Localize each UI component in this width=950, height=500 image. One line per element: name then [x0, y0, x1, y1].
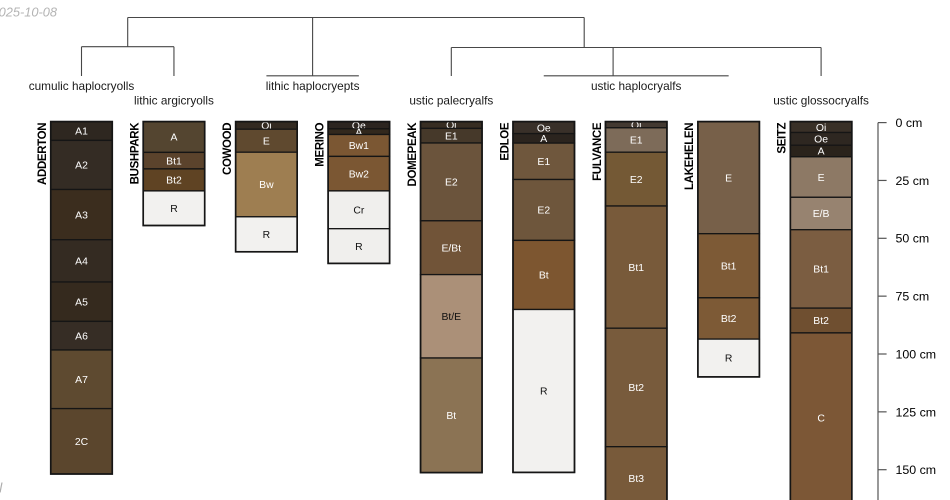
svg-text:Bt/E: Bt/E — [441, 312, 461, 323]
svg-text:A2: A2 — [75, 161, 88, 172]
svg-text:0 cm: 0 cm — [896, 116, 923, 130]
svg-text:LAKEHELEN: LAKEHELEN — [684, 123, 696, 190]
svg-text:R: R — [355, 242, 363, 253]
svg-text:E2: E2 — [537, 206, 550, 217]
svg-text:A3: A3 — [75, 210, 88, 221]
svg-text:cumulic haplocryolls: cumulic haplocryolls — [29, 79, 135, 93]
svg-text:E: E — [818, 173, 825, 184]
svg-text:Bt1: Bt1 — [813, 265, 829, 276]
svg-text:COWOOD: COWOOD — [222, 123, 234, 175]
svg-text:A: A — [170, 133, 177, 144]
svg-text:Bt3: Bt3 — [628, 474, 644, 485]
svg-text:Bt2: Bt2 — [721, 314, 737, 325]
svg-text:Oe: Oe — [537, 123, 551, 134]
svg-text:E2: E2 — [445, 178, 458, 189]
svg-text:Bt1: Bt1 — [628, 263, 644, 274]
svg-text:2025-10-08: 2025-10-08 — [0, 5, 58, 20]
svg-text:R: R — [170, 204, 178, 215]
svg-text:A7: A7 — [75, 375, 88, 386]
svg-text:E1: E1 — [445, 131, 458, 142]
svg-text:A4: A4 — [75, 257, 88, 268]
svg-text:ustic glossocryalfs: ustic glossocryalfs — [773, 94, 869, 108]
svg-text:Bw: Bw — [259, 180, 274, 191]
svg-text:75 cm: 75 cm — [896, 290, 930, 304]
svg-text:E1: E1 — [537, 157, 550, 168]
svg-text:BUSHPARK: BUSHPARK — [130, 122, 142, 185]
svg-text:E: E — [263, 136, 270, 147]
svg-text:EDLOE: EDLOE — [499, 122, 511, 161]
svg-text:lithic argicryolls: lithic argicryolls — [134, 94, 214, 108]
svg-text:DOMEPEAK: DOMEPEAK — [407, 122, 419, 187]
svg-text:Bt2: Bt2 — [813, 316, 829, 327]
svg-text:Bt2: Bt2 — [628, 383, 644, 394]
svg-text:C: C — [817, 414, 825, 425]
svg-text:R: R — [263, 230, 271, 241]
svg-text:Bt: Bt — [539, 271, 549, 282]
svg-text:Bt2: Bt2 — [166, 176, 182, 187]
svg-text:150 cm: 150 cm — [896, 463, 937, 477]
svg-text:E2: E2 — [630, 175, 643, 186]
svg-text:MERINO: MERINO — [314, 122, 326, 166]
svg-text:R: R — [725, 354, 733, 365]
svg-text:ustic haplocryalfs: ustic haplocryalfs — [591, 79, 682, 93]
svg-text:FULVANCE: FULVANCE — [592, 122, 604, 181]
svg-text:25 cm: 25 cm — [896, 174, 930, 188]
svg-text:E1: E1 — [630, 136, 643, 147]
svg-text:Bw1: Bw1 — [349, 141, 369, 152]
svg-text:Bt1: Bt1 — [166, 156, 182, 167]
svg-text:Oe: Oe — [814, 135, 828, 146]
svg-text:100 cm: 100 cm — [896, 347, 937, 361]
svg-text:125 cm: 125 cm — [896, 405, 937, 419]
svg-text:2C: 2C — [75, 437, 89, 448]
svg-text:Bt: Bt — [446, 411, 456, 422]
svg-text:A: A — [818, 147, 825, 158]
svg-text:A1: A1 — [75, 127, 88, 138]
svg-text:50 cm: 50 cm — [896, 232, 930, 246]
svg-text:E/Bt: E/Bt — [441, 243, 461, 254]
svg-text:ADDERTON: ADDERTON — [37, 123, 49, 185]
svg-text:lithic haplocryepts: lithic haplocryepts — [266, 79, 360, 93]
svg-text:Bt1: Bt1 — [721, 261, 737, 272]
svg-text:SEITZ: SEITZ — [777, 122, 789, 153]
svg-text:ustic palecryalfs: ustic palecryalfs — [409, 94, 493, 108]
svg-text:Bw2: Bw2 — [349, 169, 369, 180]
svg-text:A6: A6 — [75, 331, 88, 342]
svg-text:Cr: Cr — [353, 206, 365, 217]
svg-text:E: E — [725, 173, 732, 184]
svg-text:R: R — [540, 387, 548, 398]
svg-text:E/B: E/B — [813, 209, 830, 220]
svg-text:A5: A5 — [75, 297, 88, 308]
